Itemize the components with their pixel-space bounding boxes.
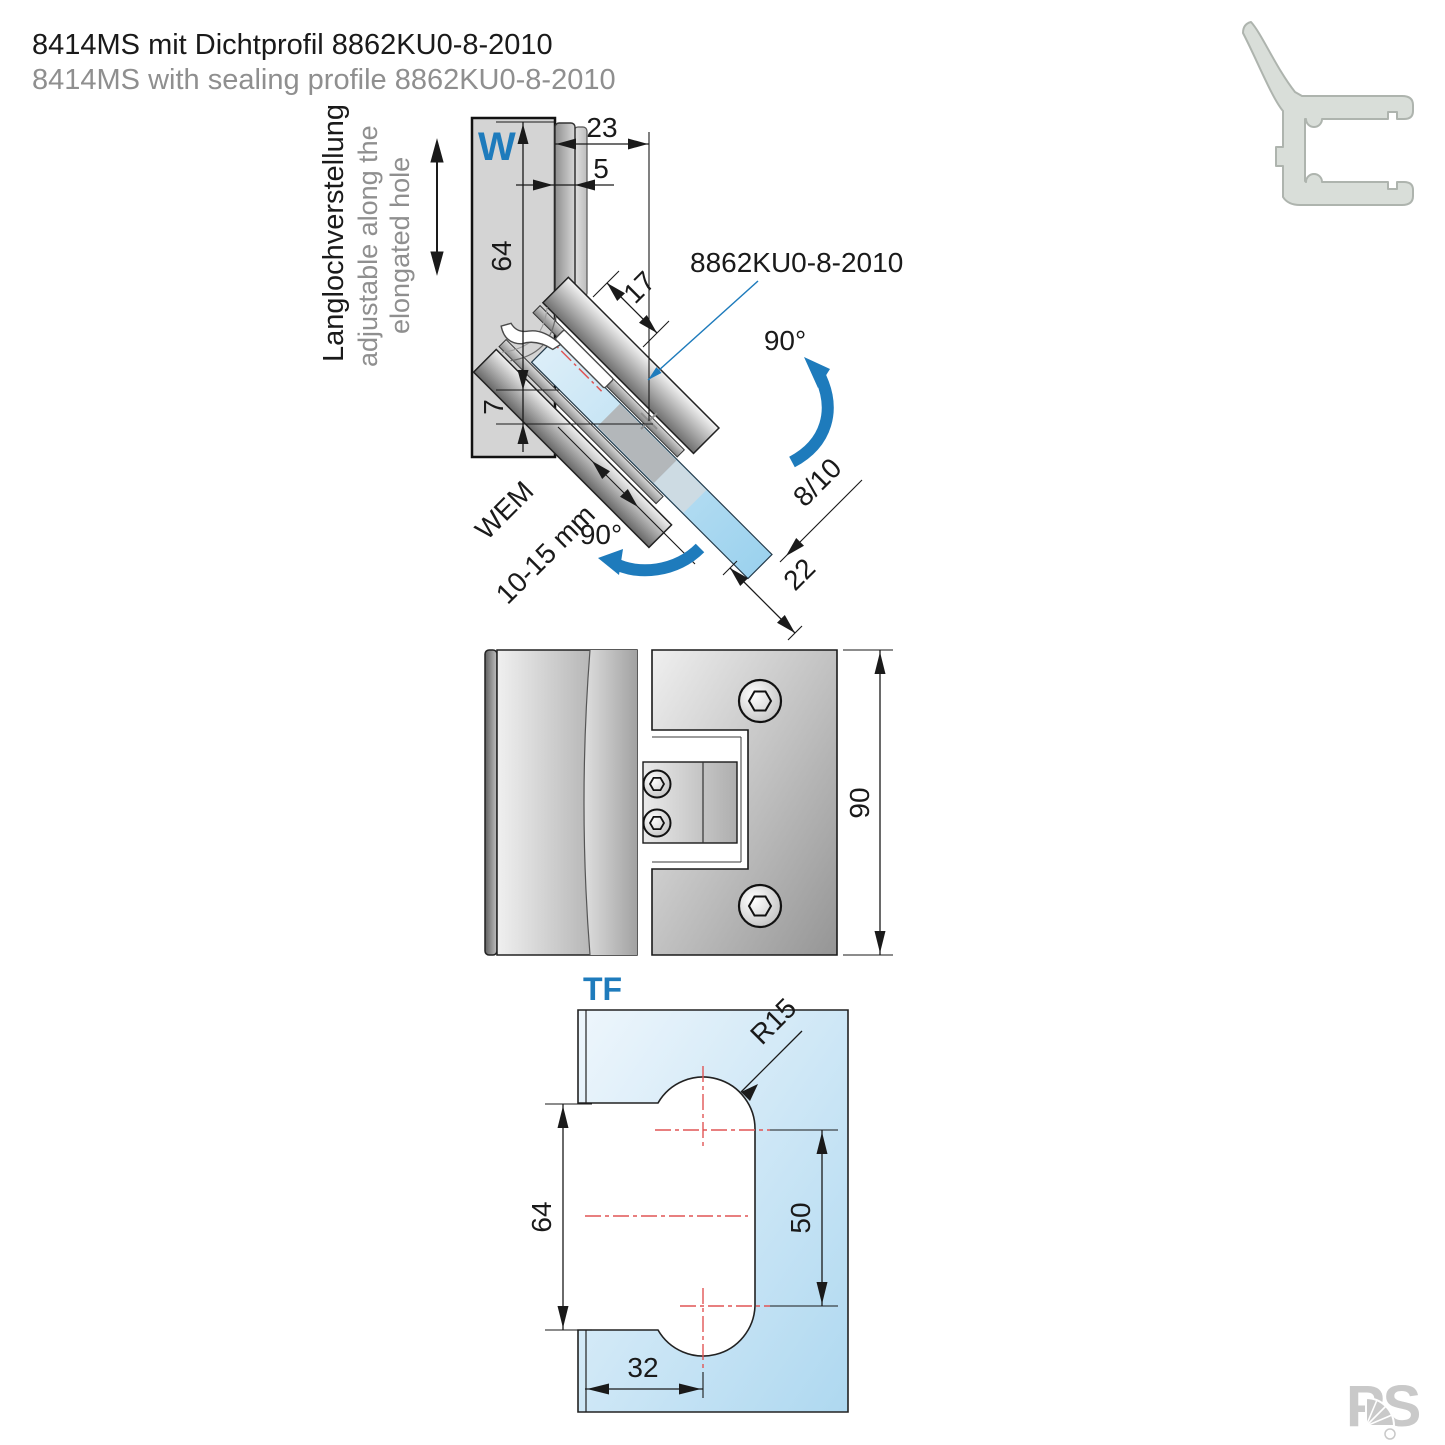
title-german: 8414MS mit Dichtprofil 8862KU0-8-2010	[32, 29, 553, 61]
mounting-plate	[555, 123, 575, 305]
note-german: Langlochverstellung	[318, 104, 350, 362]
note-english-line2: elongated hole	[385, 157, 415, 334]
left-plate-bevel	[584, 650, 637, 955]
mounting-plate-outer	[574, 127, 587, 297]
adjustment-screw-top	[644, 771, 671, 798]
wall-label: W	[478, 125, 516, 169]
sealing-profile-icon	[1243, 22, 1413, 205]
glass-edge-strip	[485, 650, 497, 955]
swing-angle-bottom: 90°	[580, 519, 622, 550]
drawing-svg: 8414MS mit Dichtprofil 8862KU0-8-2010 84…	[0, 0, 1445, 1445]
title-english: 8414MS with sealing profile 8862KU0-8-20…	[32, 64, 616, 96]
mount-screw-top	[739, 680, 781, 722]
dim-drop: 7	[478, 399, 509, 415]
title-block: 8414MS mit Dichtprofil 8862KU0-8-2010 84…	[32, 29, 616, 96]
dim-depth: 32	[627, 1352, 658, 1383]
dim-centers: 50	[785, 1202, 816, 1233]
swing-arrow-top-icon	[792, 357, 830, 462]
dim-plate: 5	[593, 153, 609, 184]
front-view: 90	[485, 650, 893, 955]
note-english-line1: adjustable along the	[353, 125, 383, 367]
seal-profile-label: 8862KU0-8-2010	[690, 247, 903, 278]
technical-drawing-page: 8414MS mit Dichtprofil 8862KU0-8-2010 84…	[0, 0, 1445, 1445]
seal-leader-line	[648, 281, 758, 380]
adjustment-double-arrow-icon	[431, 140, 443, 274]
glass-cutout-view: TF	[526, 971, 848, 1412]
wem-label: WEM	[469, 475, 539, 545]
dim-overhang: 22	[777, 552, 821, 596]
adjustment-screw-bottom	[644, 810, 671, 837]
dim-offset: 23	[586, 112, 617, 143]
elongated-hole-note: Langlochverstellung adjustable along the…	[318, 104, 415, 367]
glass-view-label: TF	[583, 971, 622, 1007]
ps-logo: PS	[1346, 1374, 1420, 1439]
dim-height: 64	[486, 240, 517, 271]
mount-screw-bottom	[739, 885, 781, 927]
centerlines	[585, 1066, 770, 1372]
side-view: Langlochverstellung adjustable along the…	[318, 104, 903, 640]
swing-arrow-bottom-icon	[598, 548, 700, 575]
dim-front-height: 90	[844, 787, 875, 818]
dim-cutout-height: 64	[526, 1201, 557, 1232]
swing-angle-top: 90°	[764, 325, 806, 356]
dim-axis: 17	[617, 265, 661, 309]
